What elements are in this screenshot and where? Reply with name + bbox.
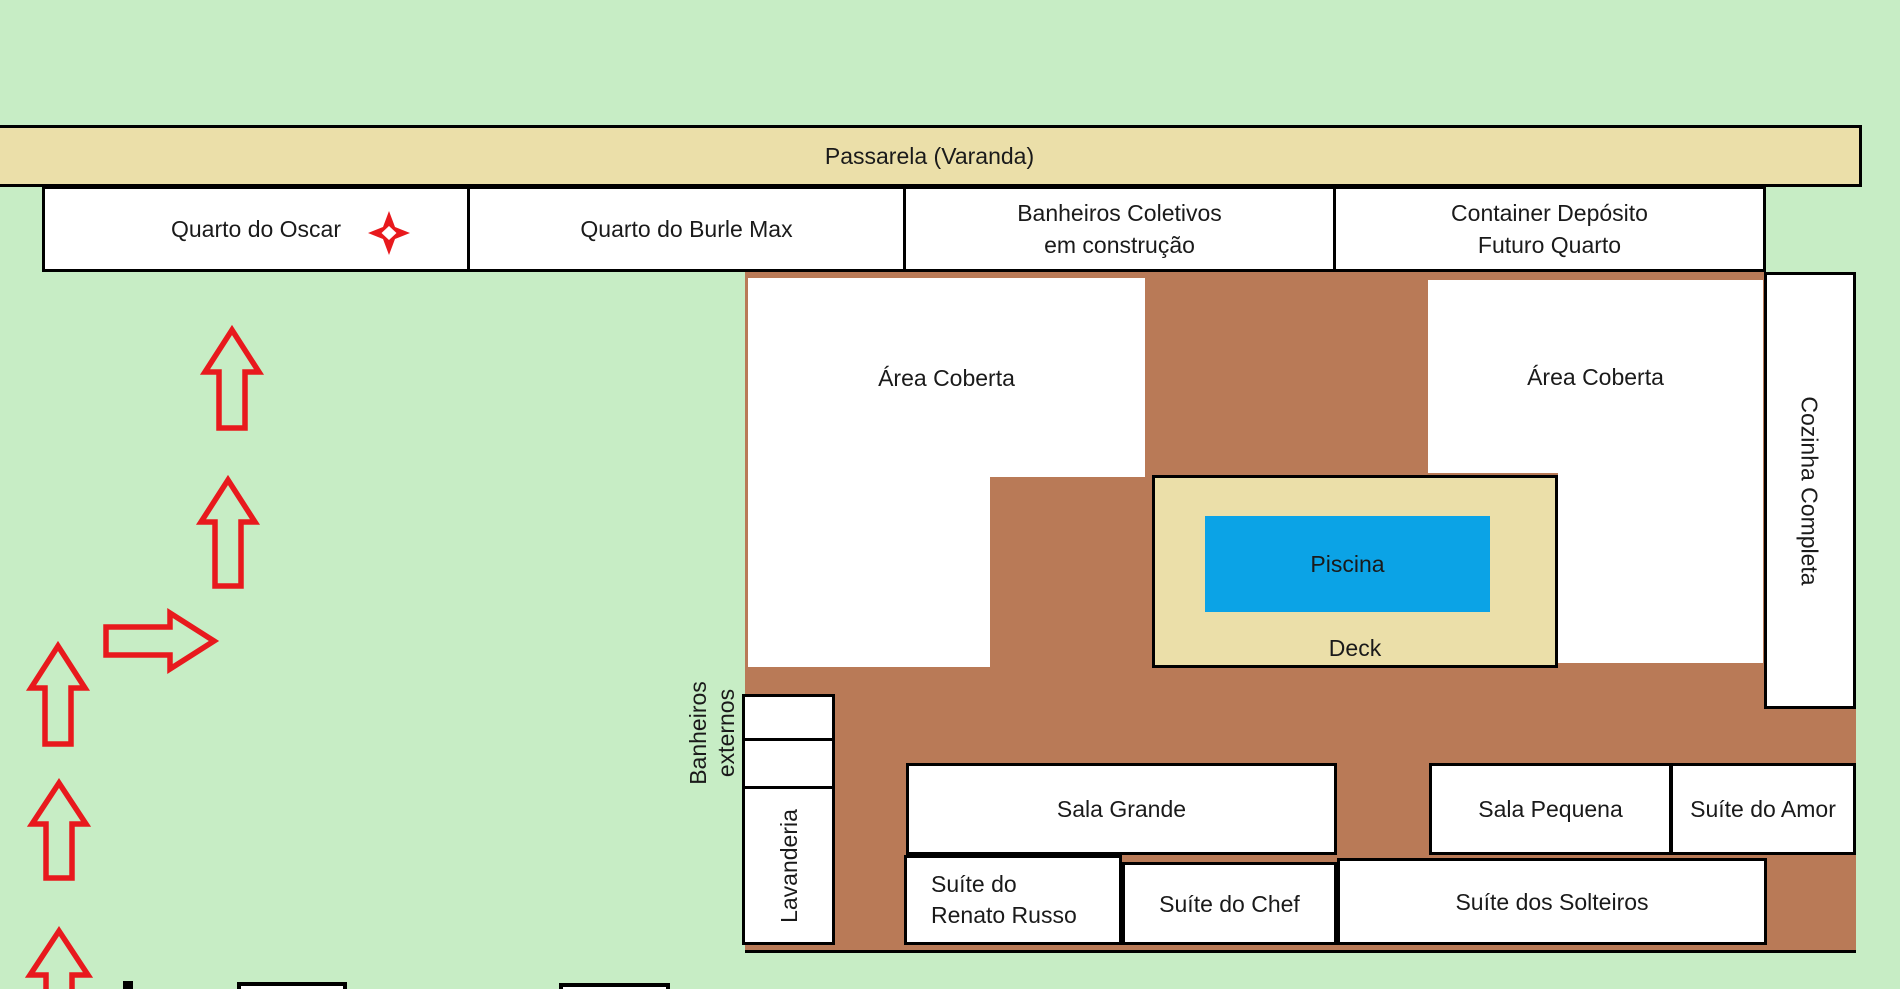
quarto-do-oscar-label: Quarto do Oscar bbox=[171, 216, 341, 242]
area-coberta-left-extension bbox=[748, 477, 990, 667]
cozinha-completa-label: Cozinha Completa bbox=[1797, 396, 1823, 585]
cutoff-mark bbox=[123, 981, 133, 989]
lavanderia-label: Lavanderia bbox=[776, 809, 802, 923]
passarela-varanda-area: Passarela (Varanda) bbox=[0, 125, 1862, 187]
up-arrow-icon-5-cut bbox=[30, 931, 88, 989]
floor-plan-canvas: Passarela (Varanda) Quarto do Oscar Quar… bbox=[0, 0, 1900, 989]
room-suite-renato-russo: Suíte do Renato Russo bbox=[904, 855, 1122, 945]
piscina-label: Piscina bbox=[1310, 551, 1384, 577]
room-container-deposito: Container Depósito Futuro Quarto bbox=[1333, 186, 1766, 272]
area-coberta-left-label: Área Coberta bbox=[878, 365, 1015, 391]
banheiros-coletivos-label: Banheiros Coletivos em construção bbox=[1017, 197, 1222, 261]
room-lavanderia: Lavanderia bbox=[745, 789, 832, 942]
container-deposito-label: Container Depósito Futuro Quarto bbox=[1451, 197, 1648, 261]
right-arrow-icon bbox=[106, 613, 214, 669]
area-coberta-right: Área Coberta bbox=[1428, 280, 1763, 473]
room-suite-do-chef: Suíte do Chef bbox=[1122, 862, 1337, 945]
up-arrow-icon-4 bbox=[32, 783, 86, 878]
external-bathroom-stall-2 bbox=[745, 741, 832, 789]
cutoff-box-2 bbox=[559, 983, 670, 989]
up-arrow-icon-1 bbox=[205, 330, 259, 428]
suite-do-chef-label: Suíte do Chef bbox=[1159, 891, 1300, 917]
sala-grande-label: Sala Grande bbox=[1057, 796, 1186, 822]
deck-label: Deck bbox=[1329, 635, 1381, 661]
suite-dos-solteiros-label: Suíte dos Solteiros bbox=[1455, 889, 1648, 915]
external-bathroom-stall-1 bbox=[745, 697, 832, 741]
quarto-do-burle-max-label: Quarto do Burle Max bbox=[580, 216, 792, 242]
suite-do-amor-label: Suíte do Amor bbox=[1690, 796, 1836, 822]
lavanderia-column: Lavanderia bbox=[742, 694, 835, 945]
room-quarto-do-oscar: Quarto do Oscar bbox=[42, 186, 470, 272]
room-suite-do-amor: Suíte do Amor bbox=[1670, 763, 1856, 855]
area-coberta-right-label: Área Coberta bbox=[1527, 364, 1664, 390]
room-sala-pequena: Sala Pequena bbox=[1429, 763, 1672, 855]
room-sala-grande: Sala Grande bbox=[906, 763, 1337, 855]
room-cozinha-completa: Cozinha Completa bbox=[1764, 272, 1856, 709]
banheiros-externos-label: Banheiros externos bbox=[684, 681, 740, 785]
passarela-label: Passarela (Varanda) bbox=[825, 143, 1034, 169]
room-banheiros-coletivos: Banheiros Coletivos em construção bbox=[903, 186, 1336, 272]
suite-renato-russo-label: Suíte do Renato Russo bbox=[931, 869, 1119, 931]
area-coberta-left: Área Coberta bbox=[748, 278, 1145, 477]
cutoff-box-1 bbox=[237, 982, 347, 989]
sala-pequena-label: Sala Pequena bbox=[1478, 796, 1623, 822]
area-coberta-right-extension bbox=[1558, 473, 1763, 663]
room-quarto-do-burle-max: Quarto do Burle Max bbox=[467, 186, 906, 272]
piscina-pool: Piscina bbox=[1205, 516, 1490, 612]
up-arrow-icon-2 bbox=[201, 480, 255, 586]
room-suite-dos-solteiros: Suíte dos Solteiros bbox=[1337, 858, 1767, 945]
up-arrow-icon-3 bbox=[31, 646, 85, 744]
